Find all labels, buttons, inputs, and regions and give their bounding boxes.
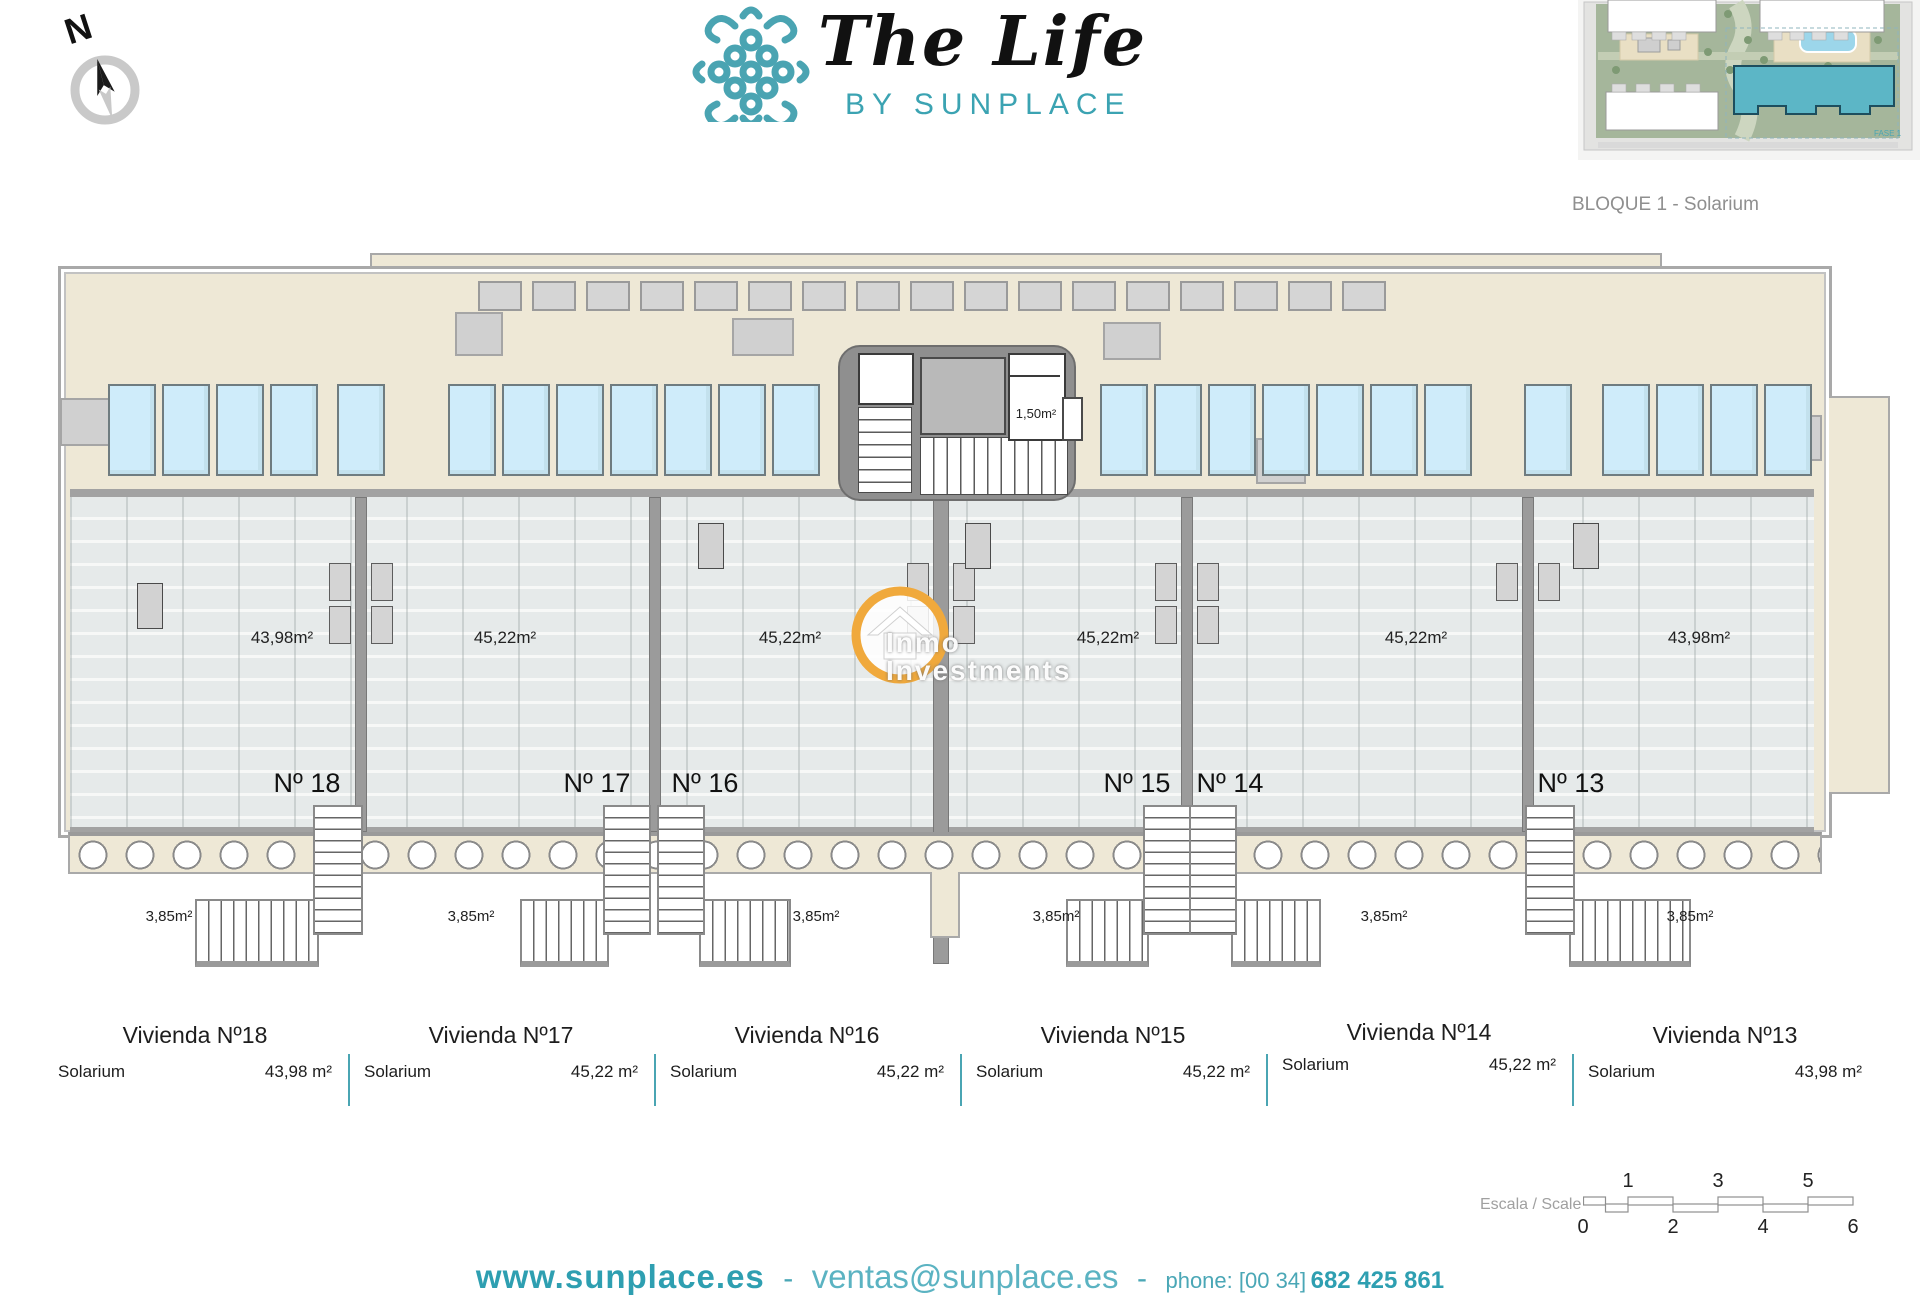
terrace-box: [907, 563, 929, 601]
table-room-label: Solarium: [364, 1062, 431, 1082]
table-column-title: Vivienda Nº13: [1574, 1022, 1876, 1062]
table-area-value: 45,22 m²: [1489, 1055, 1556, 1075]
room-divider-line: [1010, 375, 1060, 377]
stair-area-label: 3,85m²: [1640, 908, 1740, 925]
table-area-value: 45,22 m²: [877, 1062, 944, 1082]
terrace-box: [907, 606, 929, 644]
table-column-title: Vivienda Nº18: [44, 1022, 346, 1062]
table-column-title: Vivienda Nº14: [1268, 1019, 1570, 1059]
plunge-pool: [1424, 384, 1472, 476]
external-stair-shaft: [1525, 805, 1575, 935]
table-column-title: Vivienda Nº15: [962, 1022, 1264, 1062]
table-column: Vivienda Nº18 Solarium43,98 m²: [42, 1022, 348, 1082]
footer-email-link[interactable]: ventas@sunplace.es: [812, 1258, 1119, 1295]
sunbed: [640, 281, 684, 311]
plunge-pool: [1262, 384, 1310, 476]
plunge-pool: [1764, 384, 1812, 476]
table-room-label: Solarium: [670, 1062, 737, 1082]
plunge-pool: [162, 384, 210, 476]
table-column-title: Vivienda Nº16: [656, 1022, 958, 1062]
core-wc-room: [1008, 353, 1066, 441]
unit-number-label: Nº 14: [1150, 768, 1310, 799]
terrace-vent: [137, 583, 163, 629]
plunge-pool: [1154, 384, 1202, 476]
plunge-pool: [216, 384, 264, 476]
external-stair-run: [1231, 899, 1321, 967]
footer-separator: -: [1137, 1262, 1147, 1295]
units-table: Vivienda Nº18 Solarium43,98 m² Vivienda …: [42, 1022, 1882, 1082]
utility-box: [732, 318, 794, 356]
sunbed: [802, 281, 846, 311]
sunbed: [1234, 281, 1278, 311]
plunge-pool: [610, 384, 658, 476]
plunge-pool: [664, 384, 712, 476]
scale-number: 6: [1843, 1216, 1863, 1239]
table-column-title: Vivienda Nº17: [350, 1022, 652, 1062]
stair-area-label: 3,85m²: [1334, 908, 1434, 925]
core-stair-main: [920, 437, 1068, 495]
sunbed: [1180, 281, 1224, 311]
plunge-pool: [502, 384, 550, 476]
sunbed: [532, 281, 576, 311]
logo-ornament-icon: [688, 4, 814, 122]
stair-area-label: 3,85m²: [421, 908, 521, 925]
table-column: Vivienda Nº15 Solarium45,22 m²: [960, 1022, 1266, 1082]
core-stair-upper: [858, 407, 912, 493]
external-stair-shaft: [1143, 805, 1191, 935]
terrace-box: [1197, 606, 1219, 644]
unit-area-label: 45,22m²: [1346, 628, 1486, 648]
table-room-label: Solarium: [976, 1062, 1043, 1082]
stair-area-label: 3,85m²: [766, 908, 866, 925]
unit-area-label: 45,22m²: [1038, 628, 1178, 648]
scale-number: 1: [1618, 1170, 1638, 1193]
terrace-vent: [698, 523, 724, 569]
terrace-box: [953, 606, 975, 644]
table-column: Vivienda Nº14 Solarium45,22 m²: [1266, 1022, 1572, 1082]
scale-label: Escala / Scale: [1480, 1196, 1581, 1214]
utility-box: [455, 312, 503, 356]
unit-number-label: Nº 18: [227, 768, 387, 799]
plunge-pool: [270, 384, 318, 476]
external-stair-shaft: [313, 805, 363, 935]
stair-area-label: 3,85m²: [119, 908, 219, 925]
table-area-value: 45,22 m²: [571, 1062, 638, 1082]
logo-subtitle: BY SUNPLACE: [845, 88, 1132, 122]
plunge-pool: [108, 384, 156, 476]
compass-icon: N: [48, 2, 158, 142]
unit-number-label: Nº 13: [1491, 768, 1651, 799]
utility-box: [60, 398, 110, 446]
plunge-pool: [1208, 384, 1256, 476]
scale-bar: [1583, 1196, 1855, 1214]
sunbed: [910, 281, 954, 311]
table-area-value: 43,98 m²: [1795, 1062, 1862, 1082]
plunge-pool: [1524, 384, 1572, 476]
table-column: Vivienda Nº16 Solarium45,22 m²: [654, 1022, 960, 1082]
plunge-pool: [1316, 384, 1364, 476]
core-wc-area-label: 1,50m²: [1006, 406, 1066, 421]
sunbed: [856, 281, 900, 311]
compass-north-letter: N: [59, 5, 96, 52]
footer: www.sunplace.es - ventas@sunplace.es - p…: [0, 1258, 1920, 1296]
unit-area-label: 43,98m²: [212, 628, 352, 648]
plunge-pool: [1710, 384, 1758, 476]
footer-phone-number: 682 425 861: [1311, 1267, 1444, 1294]
plunge-pool: [1100, 384, 1148, 476]
sunbed: [1072, 281, 1116, 311]
terrace-box: [371, 606, 393, 644]
fase-label: FASE 1: [1874, 129, 1902, 138]
terrace-vent: [965, 523, 991, 569]
table-area-value: 43,98 m²: [265, 1062, 332, 1082]
logo-title: The Life: [818, 2, 1147, 82]
plunge-pool: [337, 384, 385, 476]
table-column: Vivienda Nº17 Solarium45,22 m²: [348, 1022, 654, 1082]
plunge-pool: [448, 384, 496, 476]
right-annex: [1829, 396, 1890, 794]
unit-area-label: 45,22m²: [435, 628, 575, 648]
walkway-tab: [930, 872, 960, 938]
external-stair-run: [520, 899, 609, 967]
terrace-box: [1538, 563, 1560, 601]
plunge-pool: [1656, 384, 1704, 476]
table-room-label: Solarium: [58, 1062, 125, 1082]
sunbed: [478, 281, 522, 311]
sunbed: [1342, 281, 1386, 311]
sunbed: [694, 281, 738, 311]
unit-area-label: 43,98m²: [1629, 628, 1769, 648]
external-stair-shaft: [1189, 805, 1237, 935]
stair-area-label: 3,85m²: [1006, 908, 1106, 925]
floorplan-sheet: { "compass": {"letter": "N"}, "logo": {"…: [0, 0, 1920, 1280]
elevator-shaft: [920, 357, 1006, 435]
plunge-pool: [1602, 384, 1650, 476]
utility-box: [1103, 322, 1161, 360]
plunge-pool: [718, 384, 766, 476]
scale-number: 5: [1798, 1170, 1818, 1193]
core-room: [858, 353, 914, 405]
sunbed: [586, 281, 630, 311]
table-column: Vivienda Nº13 Solarium43,98 m²: [1572, 1022, 1878, 1082]
sunbed: [1018, 281, 1062, 311]
footer-website-link[interactable]: www.sunplace.es: [476, 1258, 765, 1295]
plunge-pool: [772, 384, 820, 476]
terrace-box: [371, 563, 393, 601]
sunbed: [1126, 281, 1170, 311]
terrace-box: [1155, 563, 1177, 601]
thumbnail-caption: BLOQUE 1 - Solarium: [1572, 194, 1759, 216]
terrace-box: [329, 563, 351, 601]
scale-number: 4: [1753, 1216, 1773, 1239]
footer-separator: -: [783, 1262, 793, 1295]
terrace-vent: [1573, 523, 1599, 569]
scale-number: 2: [1663, 1216, 1683, 1239]
plunge-pool: [556, 384, 604, 476]
terrace-box: [1496, 563, 1518, 601]
external-stair-shaft: [603, 805, 651, 935]
external-stair-shaft: [657, 805, 705, 935]
table-area-value: 45,22 m²: [1183, 1062, 1250, 1082]
siteplan-thumbnail: FASE 1: [1578, 0, 1920, 168]
terrace-box: [1197, 563, 1219, 601]
sunbed: [748, 281, 792, 311]
plunge-pool: [1370, 384, 1418, 476]
table-room-label: Solarium: [1588, 1062, 1655, 1082]
scale-number: 0: [1573, 1216, 1593, 1239]
scale-number: 3: [1708, 1170, 1728, 1193]
footer-phone-prefix: phone: [00 34]: [1165, 1268, 1306, 1293]
sunbed: [1288, 281, 1332, 311]
unit-area-label: 45,22m²: [720, 628, 860, 648]
unit-number-label: Nº 16: [625, 768, 785, 799]
sunbed: [964, 281, 1008, 311]
table-room-label: Solarium: [1282, 1055, 1349, 1075]
